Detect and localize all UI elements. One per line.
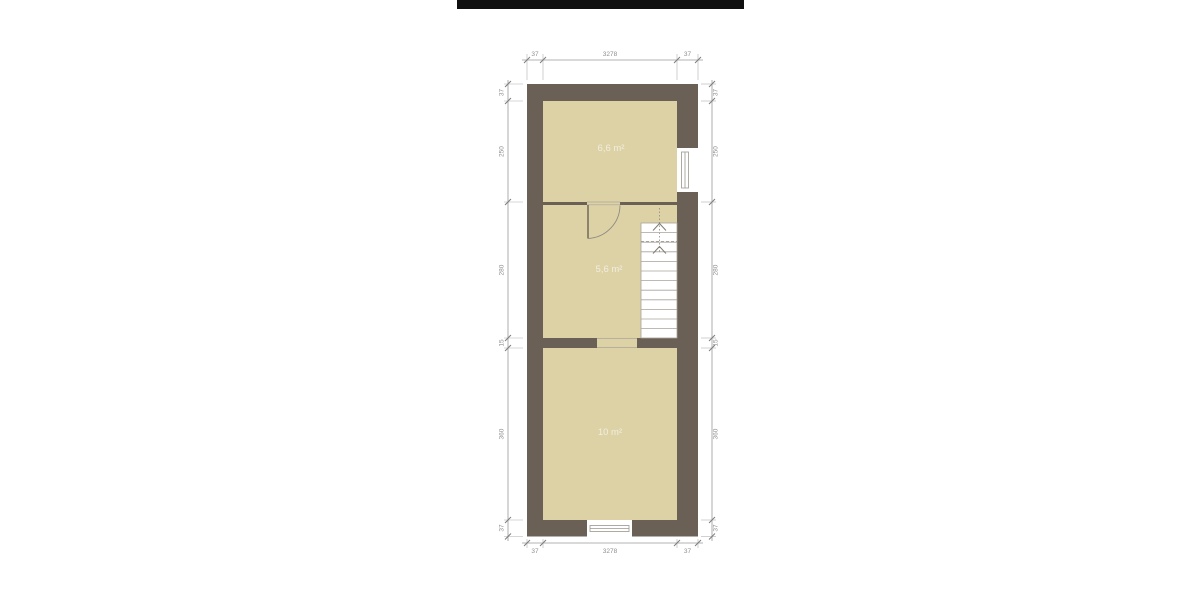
dim-left-wall-bottom: 37 [499,524,506,532]
dim-left-interior-wall: 15 [499,339,506,347]
dim-top-wall-left: 37 [531,51,539,58]
dim-top-interior-width: 3278 [603,51,618,58]
dim-right-room-top: 250 [713,146,720,157]
room-middle-area-label: 5,6 m² [596,264,623,275]
dim-bottom-wall-right: 37 [684,548,692,555]
dim-left-room-middle: 280 [499,264,506,275]
dimension-bottom: 37 3278 37 [522,539,703,555]
dimension-top: 37 3278 37 [522,51,703,80]
dim-right-room-middle: 280 [713,264,720,275]
room-bottom-area-label: 10 m² [598,427,622,438]
dim-left-wall-top: 37 [499,89,506,97]
passage-opening [597,338,637,348]
dim-right-room-bottom: 360 [713,428,720,439]
dim-top-wall-right: 37 [684,51,692,58]
dim-bottom-interior-width: 3278 [603,548,618,555]
dim-left-room-top: 250 [499,146,506,157]
dim-right-wall-top: 37 [713,89,720,97]
dim-right-interior-wall: 15 [713,339,720,347]
dim-left-room-bottom: 360 [499,428,506,439]
door-opening [587,202,620,206]
dim-bottom-wall-left: 37 [531,548,539,555]
window-bottom [587,520,632,537]
scale-bar [457,0,744,9]
dimension-left: 37 250 280 15 360 37 [499,80,524,541]
room-top-area-label: 6,6 m² [598,143,625,154]
drawing-sheet: 37 3278 37 37 3278 37 37 250 [0,0,1200,600]
floor-plan-drawing: 37 3278 37 37 3278 37 37 250 [0,0,1200,600]
dimension-right: 37 250 280 15 360 37 [701,80,720,541]
staircase [641,208,677,338]
dim-right-wall-bottom: 37 [713,524,720,532]
window-right [677,148,698,192]
